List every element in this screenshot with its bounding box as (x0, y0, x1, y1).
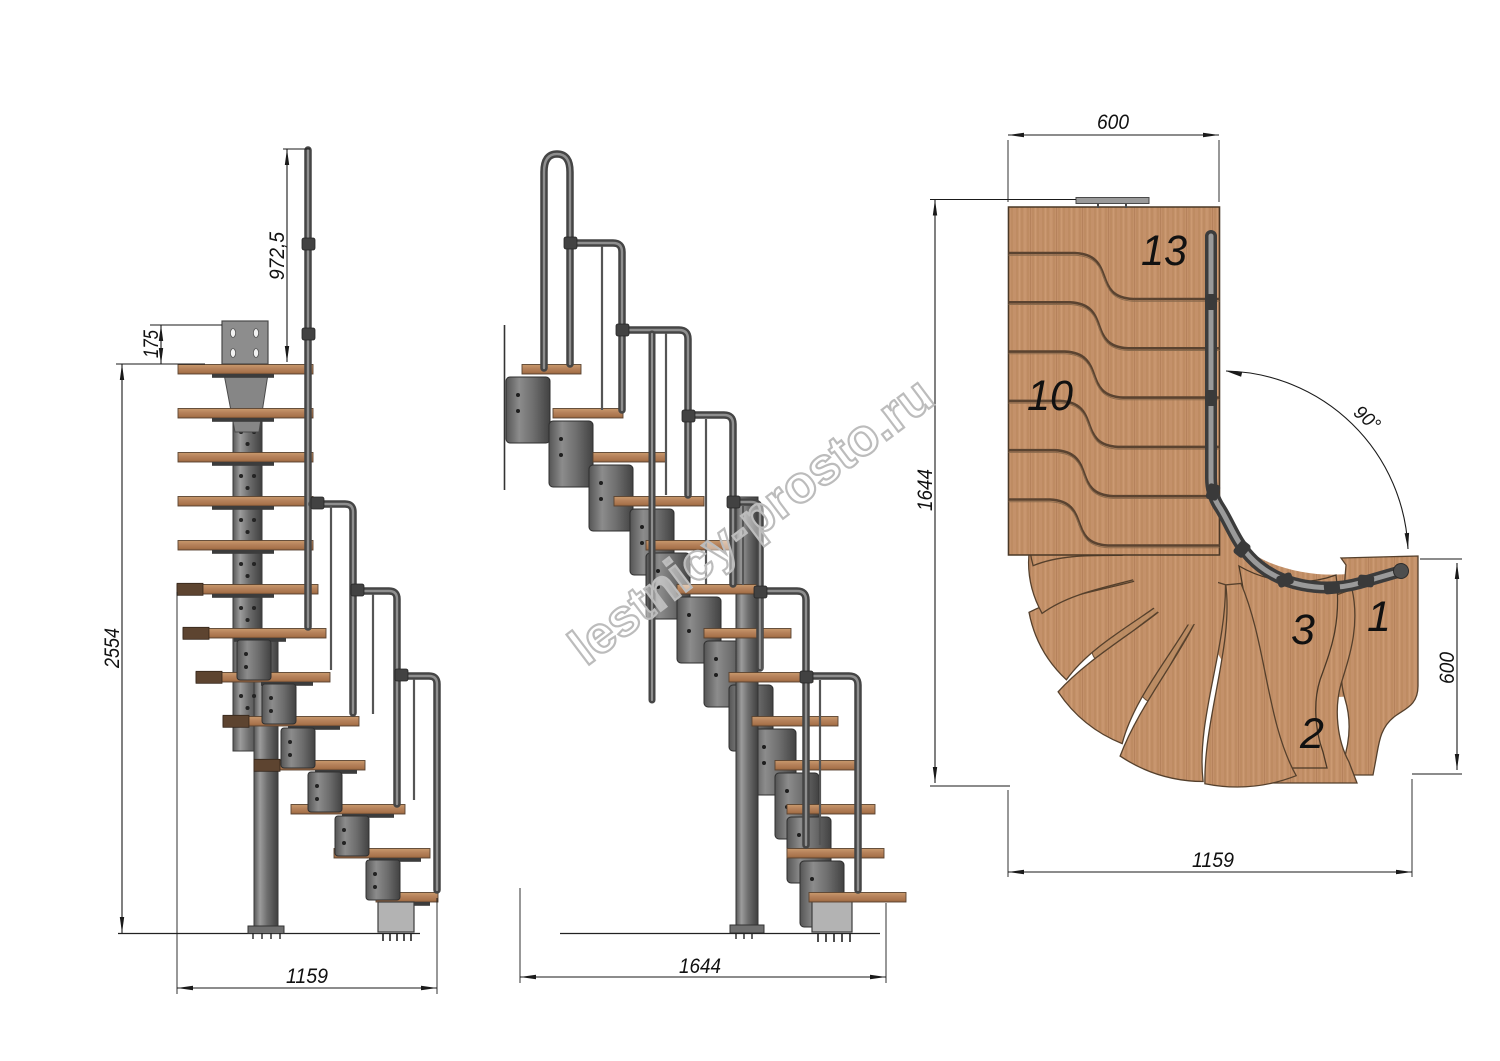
svg-text:1: 1 (1367, 593, 1391, 641)
svg-text:2: 2 (1299, 710, 1324, 758)
svg-text:3: 3 (1291, 606, 1315, 654)
svg-text:13: 13 (1141, 227, 1187, 275)
svg-text:2554: 2554 (101, 628, 124, 669)
svg-text:175: 175 (140, 330, 163, 358)
svg-text:972,5: 972,5 (266, 232, 289, 280)
svg-text:600: 600 (1097, 111, 1129, 134)
svg-text:600: 600 (1436, 652, 1459, 684)
svg-text:1644: 1644 (914, 469, 937, 511)
svg-text:10: 10 (1027, 372, 1073, 420)
svg-text:1159: 1159 (286, 965, 328, 988)
svg-text:1159: 1159 (1192, 849, 1234, 872)
svg-text:1644: 1644 (679, 955, 721, 978)
